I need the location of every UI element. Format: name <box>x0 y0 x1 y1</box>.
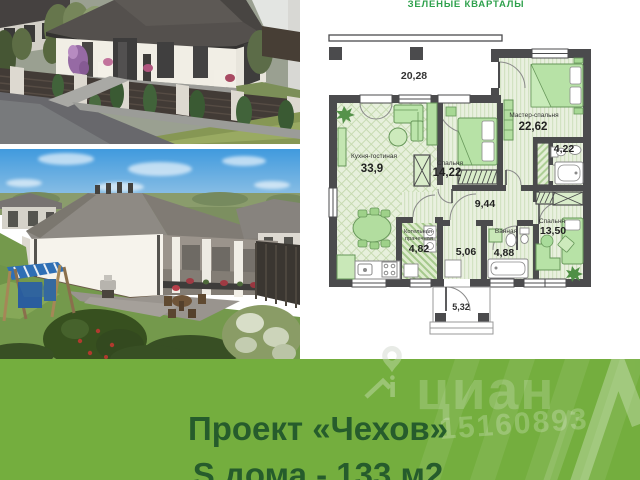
svg-text:22,62: 22,62 <box>519 121 548 133</box>
svg-text:ЗЕЛЕНЫЕ КВАРТАЛЫ: ЗЕЛЕНЫЕ КВАРТАЛЫ <box>408 0 525 10</box>
svg-text:Проект «Чехов»: Проект «Чехов» <box>188 410 448 447</box>
svg-text:Спальня: Спальня <box>437 160 464 167</box>
svg-text:Кухня-гостиная: Кухня-гостиная <box>351 153 397 160</box>
svg-text:4,82: 4,82 <box>409 243 430 255</box>
svg-text:Ванная: Ванная <box>495 228 518 235</box>
svg-text:5,06: 5,06 <box>456 246 477 258</box>
svg-text:Мастер-спальня: Мастер-спальня <box>509 112 559 119</box>
svg-text:9,44: 9,44 <box>475 198 496 210</box>
svg-text:33,9: 33,9 <box>361 163 383 175</box>
svg-text:13,50: 13,50 <box>540 225 566 237</box>
svg-text:прачечная: прачечная <box>405 236 433 242</box>
svg-text:5,32: 5,32 <box>452 302 470 312</box>
svg-text:S дома - 133 м2: S дома - 133 м2 <box>193 456 444 480</box>
svg-text:20,28: 20,28 <box>401 70 427 82</box>
svg-text:Спальня: Спальня <box>539 218 566 225</box>
svg-text:14,22: 14,22 <box>433 167 462 179</box>
svg-text:4,88: 4,88 <box>494 247 515 259</box>
svg-text:Котельная-: Котельная- <box>404 229 434 235</box>
svg-text:4,22: 4,22 <box>554 143 575 155</box>
